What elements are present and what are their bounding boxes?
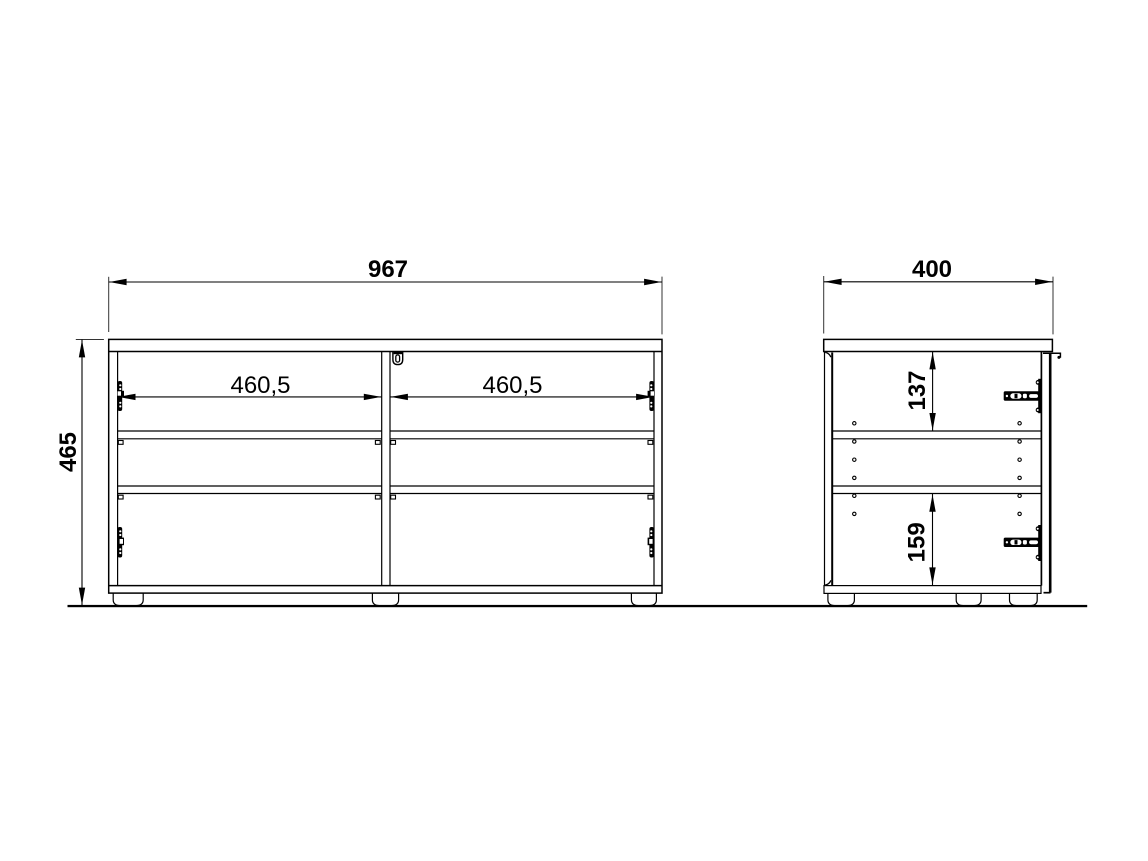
svg-text:460,5: 460,5: [230, 372, 290, 399]
svg-text:159: 159: [904, 522, 931, 562]
svg-text:137: 137: [904, 370, 931, 410]
svg-text:460,5: 460,5: [482, 372, 542, 399]
svg-text:400: 400: [912, 256, 952, 283]
svg-text:465: 465: [55, 432, 82, 472]
svg-text:967: 967: [368, 256, 408, 283]
